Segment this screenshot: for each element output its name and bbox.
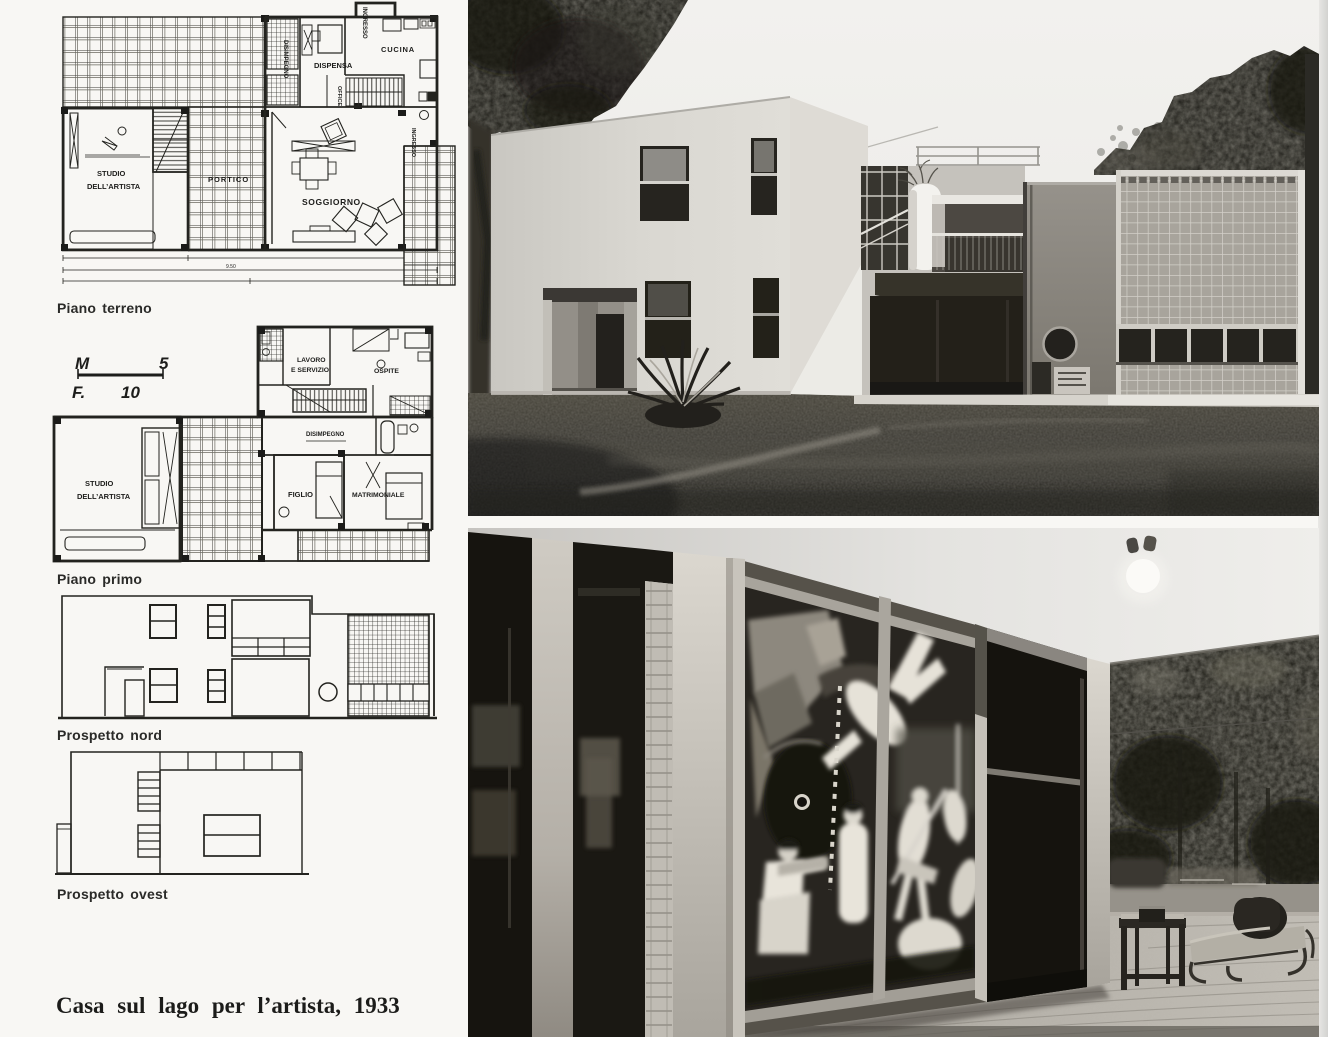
svg-text:OFFICE: OFFICE bbox=[336, 86, 342, 106]
svg-text:SOGGIORNO: SOGGIORNO bbox=[302, 197, 361, 207]
svg-text:STUDIO: STUDIO bbox=[97, 169, 126, 178]
svg-text:DELL’ARTISTA: DELL’ARTISTA bbox=[87, 182, 141, 191]
svg-text:DISIMPEGNO: DISIMPEGNO bbox=[306, 432, 345, 438]
svg-text:INGRESSO: INGRESSO bbox=[410, 128, 416, 158]
svg-text:9.50: 9.50 bbox=[226, 264, 236, 270]
svg-text:E SERVIZIO: E SERVIZIO bbox=[291, 367, 329, 374]
svg-text:DELL’ARTISTA: DELL’ARTISTA bbox=[77, 492, 131, 501]
svg-text:OSPITE: OSPITE bbox=[374, 368, 399, 375]
svg-text:STUDIO: STUDIO bbox=[85, 479, 114, 488]
svg-text:MATRIMONIALE: MATRIMONIALE bbox=[352, 492, 405, 499]
svg-text:CUCINA: CUCINA bbox=[381, 45, 415, 54]
svg-text:DISPENSA: DISPENSA bbox=[314, 61, 353, 70]
svg-text:INGRESSO: INGRESSO bbox=[361, 7, 367, 39]
svg-text:FIGLIO: FIGLIO bbox=[288, 490, 313, 499]
svg-text:DISIMPEGNO: DISIMPEGNO bbox=[282, 40, 288, 79]
svg-text:LAVORO: LAVORO bbox=[297, 357, 326, 364]
svg-text:PORTICO: PORTICO bbox=[208, 175, 249, 184]
